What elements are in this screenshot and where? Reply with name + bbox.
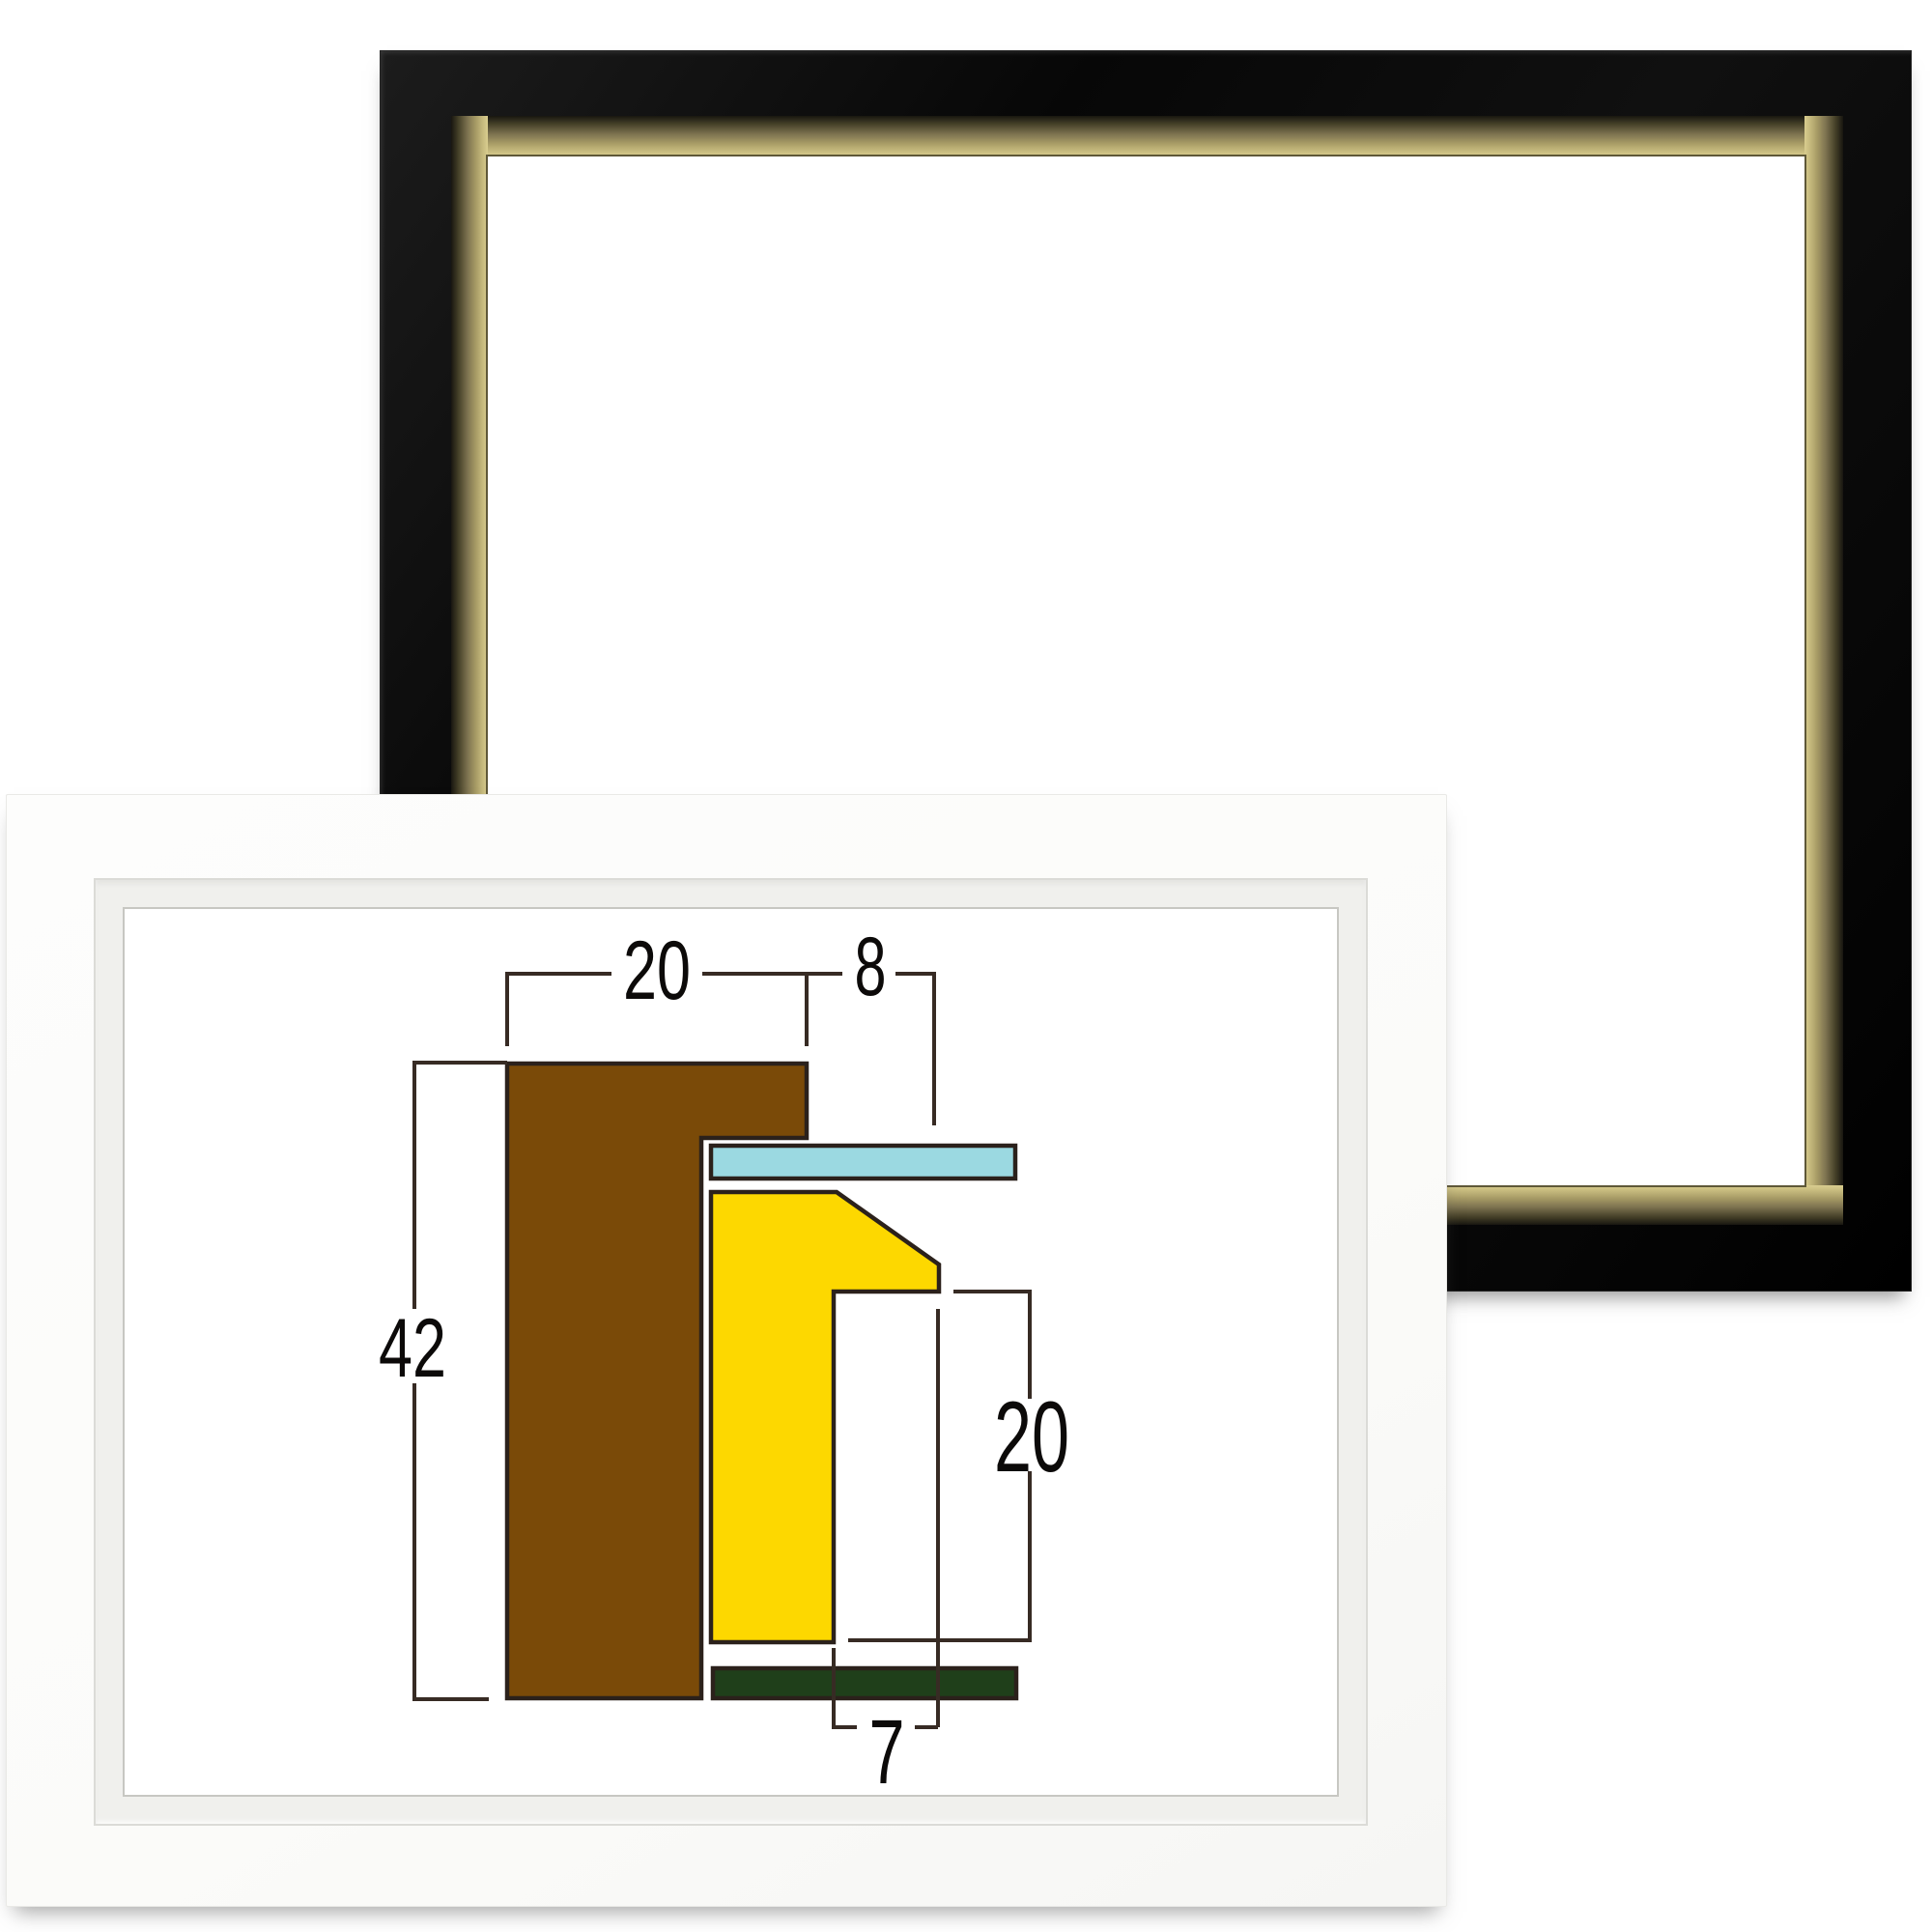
dim-rabbet-width-label: 7 bbox=[869, 1701, 905, 1804]
frame-cross-section-diagram: 20 8 42 20 7 bbox=[0, 0, 1932, 1932]
dim-overall-height-label: 42 bbox=[379, 1302, 446, 1395]
dim-rabbet-width-lines bbox=[834, 1309, 938, 1727]
backing-bar bbox=[713, 1668, 1016, 1698]
glass-bar bbox=[711, 1146, 1015, 1179]
dim-top-width-label: 20 bbox=[623, 924, 691, 1017]
liner-cross-section bbox=[711, 1192, 939, 1642]
dim-lip-overhang-label: 8 bbox=[855, 921, 887, 1013]
dim-rabbet-depth-label: 20 bbox=[994, 1381, 1069, 1493]
product-image: 20 8 42 20 7 bbox=[0, 0, 1932, 1932]
